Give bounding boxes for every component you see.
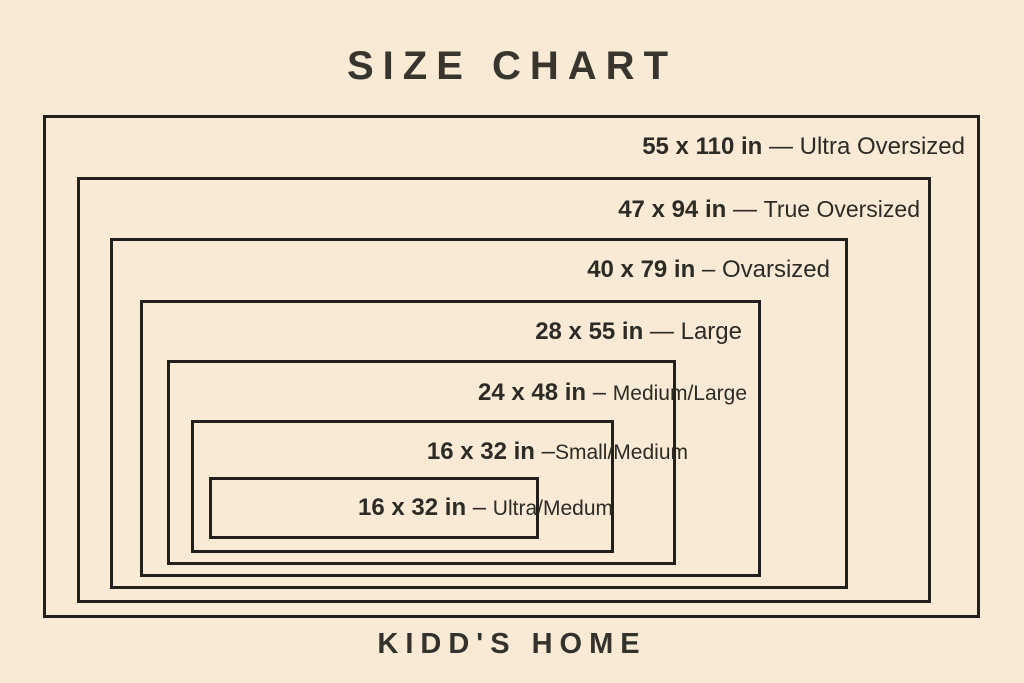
separator-dash: –	[535, 438, 555, 465]
size-label-oversized: 40 x 79 in – Ovarsized	[587, 255, 830, 285]
size-label-ultra-medium: 16 x 32 in – Ultra/Medum	[358, 493, 613, 524]
size-label-true-oversized: 47 x 94 in — True Oversized	[618, 194, 920, 225]
size-label-ultra-oversized: 55 x 110 in — Ultra Oversized	[642, 132, 965, 162]
size-value: 24 x 48 in	[478, 379, 586, 406]
separator-dash: —	[643, 318, 680, 345]
size-chart-graphic: SIZE CHART 55 x 110 in — Ultra Oversized…	[0, 0, 1024, 683]
separator-dash: —	[726, 196, 763, 223]
size-name: Large	[681, 318, 742, 345]
separator-dash: —	[762, 133, 799, 160]
size-name: True Oversized	[764, 196, 920, 222]
size-value: 47 x 94 in	[618, 196, 726, 223]
size-name: Ovarsized	[722, 256, 830, 283]
size-label-large: 28 x 55 in — Large	[535, 317, 742, 347]
page-title: SIZE CHART	[0, 44, 1024, 89]
separator-dash: –	[586, 379, 613, 406]
separator-dash: –	[695, 256, 722, 283]
size-value: 16 x 32 in	[358, 494, 466, 521]
size-label-medium-large: 24 x 48 in – Medium/Large	[478, 378, 747, 409]
size-value: 28 x 55 in	[535, 318, 643, 345]
size-name: Small/Medium	[555, 441, 688, 464]
size-label-small-medium: 16 x 32 in –Small/Medium	[427, 437, 688, 468]
size-name: Medium/Large	[613, 382, 747, 405]
size-name: Ultra Oversized	[800, 133, 965, 160]
size-value: 55 x 110 in	[642, 133, 762, 160]
separator-dash: –	[466, 494, 493, 521]
size-value: 16 x 32 in	[427, 438, 535, 465]
size-name: Ultra/Medum	[493, 497, 613, 520]
size-value: 40 x 79 in	[587, 256, 695, 283]
brand-name: KIDD'S HOME	[0, 628, 1024, 661]
